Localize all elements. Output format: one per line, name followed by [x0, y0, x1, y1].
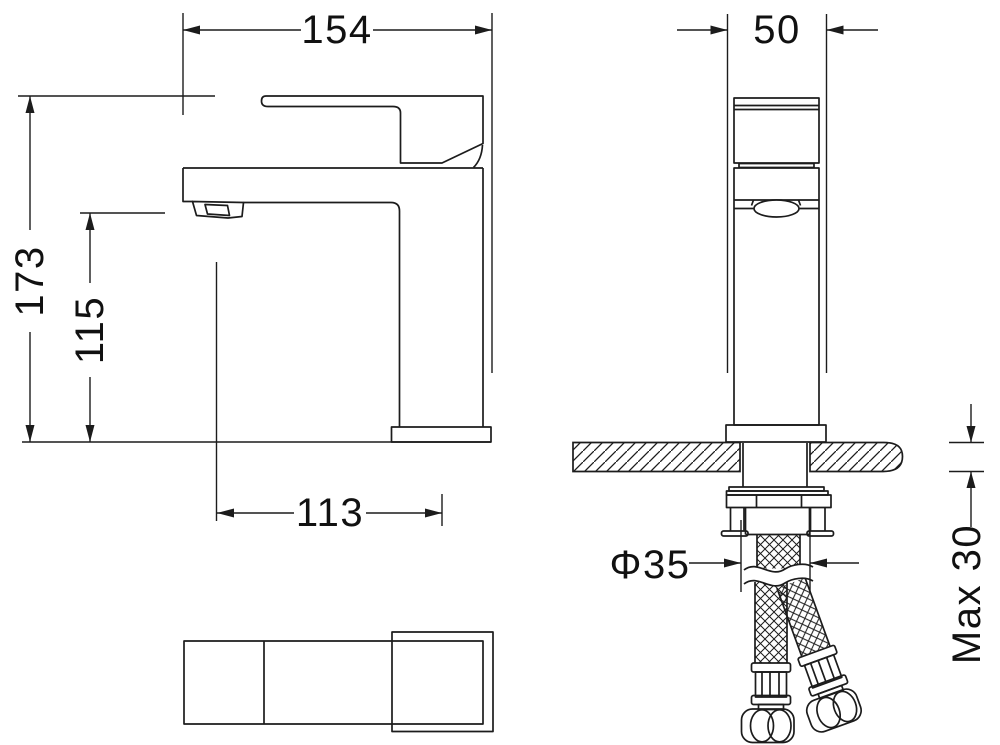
lever-handle-outline: [262, 96, 484, 163]
spout-plan-outline: [184, 641, 483, 724]
front-view: [726, 98, 826, 442]
lever-tail-arc: [474, 145, 483, 168]
spout-front-edge: [183, 168, 193, 202]
stud-foot-right: [807, 531, 834, 536]
faucet-dimension-drawing: 154 50 173 115 113 Φ35: [0, 0, 1000, 745]
lever-plan-outline: [392, 632, 493, 732]
stud-foot-left: [722, 531, 749, 536]
dim-154-label: 154: [301, 8, 372, 52]
dim-115: 115: [68, 213, 165, 442]
mounting-nut: [727, 495, 832, 508]
dim-173-label: 173: [8, 245, 52, 316]
supply-hoses: [742, 535, 865, 743]
deck-right-slab: [810, 443, 903, 472]
countertop-section: [573, 443, 903, 472]
braid-upper: [757, 535, 800, 569]
mounting-nut-facets: [757, 495, 802, 508]
lever-neck: [739, 164, 814, 168]
dim-173: 173: [8, 96, 215, 442]
spout-bottom-edge: [244, 203, 400, 428]
aerator-ring: [205, 205, 230, 216]
stud-left: [731, 508, 745, 532]
lever-front-outline: [734, 98, 819, 163]
dim-154: 154: [183, 8, 492, 373]
aerator-front-ellipse: [754, 200, 799, 217]
threaded-shank: [743, 443, 807, 487]
dim-115-label: 115: [68, 296, 112, 364]
dim-50-label: 50: [753, 8, 801, 52]
dim-113-label: 113: [296, 491, 364, 535]
deck-left-slab: [573, 443, 740, 472]
technical-drawing-sheet: 154 50 173 115 113 Φ35: [0, 0, 1000, 745]
dim-max-deck: Max 30: [945, 404, 989, 664]
dim-113: 113: [217, 491, 442, 535]
hose-left: [742, 582, 795, 743]
lever-front-top-lines: [734, 106, 819, 110]
dim-max-deck-label: Max 30: [945, 524, 989, 664]
hose-left-braid: [755, 582, 787, 663]
base-flange-front: [726, 425, 826, 442]
hose-connector-tube: [746, 508, 810, 535]
top-view: [184, 632, 493, 732]
stud-right: [811, 508, 826, 532]
dim-hole-diameter-label: Φ35: [610, 543, 691, 587]
base-flange-side: [392, 427, 492, 442]
dim-50: 50: [677, 8, 878, 373]
